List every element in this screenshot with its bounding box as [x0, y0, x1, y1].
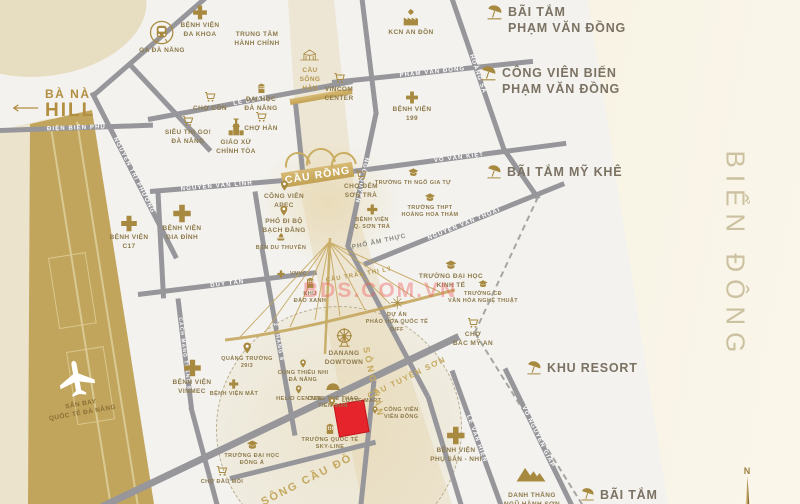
- poi-bai-tam-my-khe: BÃI TẮM MỸ KHÊ: [486, 163, 622, 180]
- pin-icon: [295, 385, 304, 394]
- poi-label: TRƯỜNG CĐVĂN HÓA NGHỆ THUẬT: [448, 291, 518, 306]
- poi-cho-bac-my-an: CHỢBẮC MỸ AN: [453, 317, 493, 349]
- mountains-icon: [515, 456, 549, 490]
- building-icon: [255, 82, 267, 94]
- poi-benh-vien-gia-dinh: BỆNH VIỆNGIA ĐÌNH: [163, 204, 202, 243]
- umbrella-icon: [480, 64, 497, 81]
- poi-truong-thpt-hoang-hoa-tham: TRƯỜNG THPTHOÀNG HOA THÁM: [401, 192, 458, 220]
- cross-icon: [173, 204, 192, 223]
- poi-kcn-an-don: KCN AN ĐỒN: [388, 8, 433, 38]
- poi-bai-tam-cut: BÃI TẮM: [580, 486, 658, 503]
- poi-label: BÃI TẮM: [600, 487, 658, 503]
- pin-icon: [278, 180, 289, 191]
- poi-label: BỆNH VIỆNGIA ĐÌNH: [163, 225, 202, 243]
- poi-vincom-center: VINCOMCENTER: [324, 72, 353, 104]
- poi-benh-vien-vinmec: BỆNH VIỆNVINMEC: [173, 359, 212, 397]
- dome-icon: [325, 379, 340, 394]
- poi-label: VINCOMCENTER: [324, 86, 353, 104]
- boat-icon: [275, 231, 287, 243]
- poi-cho-dem-son-tra: CHỢ ĐÊMSƠN TRÀ: [344, 169, 378, 201]
- cross-icon: [229, 379, 239, 389]
- poi-helio-center: HELIO CENTER: [276, 385, 322, 403]
- pin-icon: [241, 342, 253, 354]
- ferris-icon: [334, 327, 355, 348]
- poi-label: BỆNH VIỆNVINMEC: [173, 379, 212, 397]
- poi-label: CHỢ ĐẦU MỐI: [201, 479, 243, 486]
- road-label: VÕ VĂN KIỆT: [434, 151, 485, 164]
- cart-icon: [216, 465, 228, 477]
- hill-zone: [0, 0, 155, 90]
- poi-benh-vien-c17: BỆNH VIỆNC17: [110, 215, 149, 252]
- pin-icon: [327, 397, 337, 407]
- poi-label: BÃI TẮMPHẠM VĂN ĐỒNG: [508, 4, 626, 37]
- poi-label: DANANGDOWTOWN: [325, 350, 363, 368]
- bridge-icon: [300, 45, 320, 65]
- poi-label: QUẢNG TRƯỜNG29/3: [221, 356, 273, 371]
- poi-label: BẾN DU THUYỀN: [256, 245, 306, 252]
- building-icon: [324, 422, 337, 435]
- poi-label: CHỢ ĐÊMSƠN TRÀ: [344, 183, 378, 201]
- cap-icon: [445, 259, 457, 271]
- poi-label: BỆNH VIỆN199: [393, 106, 432, 124]
- cap-icon: [425, 192, 436, 203]
- road-label: ĐIỆN BIÊN PHỦ: [47, 124, 106, 132]
- poi-label: BỆNH VIỆNĐA KHOA: [181, 22, 220, 40]
- poi-label: DANH THẮNGNGŨ HÀNH SƠN: [504, 492, 560, 504]
- cart-icon: [204, 91, 216, 103]
- cross-icon: [121, 215, 138, 232]
- poi-truong-cd-van-hoa-nghe-thuat: TRƯỜNG CĐVĂN HÓA NGHỆ THUẬT: [448, 279, 518, 306]
- compass: N: [740, 466, 754, 504]
- poi-truong-dai-hoc-dong-a: TRƯỜNG ĐẠI HỌCĐÔNG Á: [224, 439, 279, 468]
- poi-benh-vien-da-khoa: BỆNH VIỆNĐA KHOA: [181, 5, 220, 40]
- poi-label: CHỢBẮC MỸ AN: [453, 331, 493, 349]
- poi-truong-quoc-te-sky-line: TRƯỜNG QUỐC TẾSKY-LINE: [301, 422, 358, 452]
- train-icon: [150, 20, 175, 45]
- church-icon: [226, 117, 246, 137]
- poi-label: BỆNH VIỆN MẮT: [210, 391, 259, 398]
- poi-label: GA ĐÀ NẴNG: [139, 47, 185, 56]
- pin-icon: [278, 205, 289, 216]
- poi-label: BỆNH VIỆNC17: [110, 234, 149, 252]
- umbrella-icon: [580, 486, 595, 501]
- road-label: NGUYỄN TRI PHƯƠNG: [112, 136, 156, 214]
- poi-sieu-thi-go-da-nang: SIÊU THỊ GO!ĐÀ NẴNG: [165, 115, 211, 147]
- poi-label: TRƯỜNG QUỐC TẾSKY-LINE: [301, 437, 358, 452]
- poi-label: CÔNG VIÊNVIÊN ĐÔNG: [384, 407, 418, 422]
- plane-icon: [52, 354, 101, 403]
- poi-danh-thang-ngu-hanh-son: DANH THẮNGNGŨ HÀNH SƠN: [504, 456, 560, 504]
- poi-san-bay-quoc-te-da-nang: SÂN BAYQUỐC TẾ ĐÀ NẴNG: [39, 352, 116, 424]
- watermark-label: BDS.COM.VN: [303, 279, 457, 303]
- poi-trung-tam-hanh-chinh: TRUNG TÂMHÀNH CHÍNH: [234, 29, 279, 49]
- poi-dai-hoc-da-nang: ĐẠI HỌCĐÀ NẴNG: [244, 82, 277, 114]
- poi-label: BỆNH VIỆNPHỤ SẢN - NHI: [430, 447, 481, 465]
- danang-location-map: ĐIỆN BIÊN PHỦLÊ DUẨNPHẠM VĂN ĐỒNGNGUYỄN …: [0, 0, 800, 504]
- cross-icon: [193, 5, 208, 20]
- road-ngo-quyen-north: [360, 0, 379, 115]
- poi-label: CÔNG VIÊN BIỂNPHẠM VĂN ĐỒNG: [502, 65, 620, 98]
- poi-label: GIÁO XỨCHÍNH TÒA: [216, 139, 256, 157]
- poi-ga-da-nang: GA ĐÀ NẴNG: [139, 20, 185, 56]
- cross-icon: [447, 426, 466, 445]
- bana-hill-pointer: BÀ NÀ HILL: [12, 88, 95, 121]
- poi-label: TRƯỜNG TH NGÔ GIA TỰ: [375, 180, 451, 187]
- sea-name-label: BIỂN ĐÔNG: [720, 151, 751, 360]
- cart-icon: [467, 317, 479, 329]
- compass-north-label: N: [740, 466, 754, 476]
- umbrella-icon: [486, 163, 502, 179]
- poi-label: HELIO CENTER: [276, 396, 322, 403]
- bana-hill-label: HILL: [45, 101, 95, 121]
- poi-cong-vien-bien-pham-van-dong: CÔNG VIÊN BIỂNPHẠM VĂN ĐỒNG: [480, 64, 620, 98]
- cart-icon: [255, 111, 267, 123]
- poi-khu-resort: KHU RESORT: [526, 359, 638, 376]
- poi-label: CHỢ CỒN: [193, 105, 227, 114]
- poi-danang-dowtown: DANANGDOWTOWN: [325, 327, 363, 368]
- poi-label: CẦUSÔNGHÀN: [300, 67, 321, 93]
- poi-label: TRUNG TÂMHÀNH CHÍNH: [234, 31, 279, 49]
- road-label: NGUYỄN VĂN LINH: [181, 180, 253, 192]
- cross-icon: [183, 359, 201, 377]
- poi-label: TRƯỜNG THPTHOÀNG HOA THÁM: [401, 205, 458, 220]
- poi-quang-truong-29-3: QUẢNG TRƯỜNG29/3: [221, 342, 273, 371]
- compass-needle-icon: [743, 476, 752, 504]
- cap-icon: [246, 439, 258, 451]
- poi-benh-vien-q-son-tra: BỆNH VIỆNQ. SƠN TRÀ: [354, 204, 391, 232]
- cart-icon: [355, 169, 367, 181]
- poi-bai-tam-pham-van-dong: BÃI TẮMPHẠM VĂN ĐỒNG: [486, 3, 626, 37]
- cap-icon: [478, 279, 488, 289]
- poi-label: KCN AN ĐỒN: [388, 29, 433, 38]
- poi-label: SIÊU THỊ GO!ĐÀ NẴNG: [165, 129, 211, 147]
- poi-label: KHU RESORT: [547, 360, 638, 376]
- poi-cau-song-han: CẦUSÔNGHÀN: [300, 45, 321, 93]
- road-label: PHẠM VĂN ĐỒNG: [399, 66, 465, 79]
- cross-icon: [367, 204, 378, 215]
- poi-label: DỰ ÁNPHÁO HOA QUỐC TẾDIFF: [366, 312, 428, 334]
- cart-icon: [333, 72, 345, 84]
- cap-icon: [408, 167, 419, 178]
- poi-benh-vien-199: BỆNH VIỆN199: [393, 91, 432, 124]
- poi-ben-du-thuyen: BẾN DU THUYỀN: [256, 231, 306, 252]
- cross-icon: [406, 91, 419, 104]
- poi-giao-xu-chinh-toa: GIÁO XỨCHÍNH TÒA: [216, 117, 256, 157]
- poi-truong-th-ngo-gia-tu: TRƯỜNG TH NGÔ GIA TỰ: [375, 167, 451, 187]
- poi-label: BÃI TẮM MỸ KHÊ: [507, 164, 622, 180]
- cart-icon: [182, 115, 194, 127]
- umbrella-icon: [486, 3, 503, 20]
- poi-cho-con: CHỢ CỒN: [193, 91, 227, 114]
- poi-cho-dau-moi: CHỢ ĐẦU MỐI: [201, 465, 243, 486]
- cross-icon: [277, 270, 285, 278]
- arrow-left-icon: [12, 100, 39, 110]
- umbrella-icon: [526, 359, 542, 375]
- pin-icon: [298, 359, 307, 368]
- poi-benh-vien-mat: BỆNH VIỆN MẮT: [210, 379, 259, 398]
- factory-icon: [401, 8, 420, 27]
- poi-label: BỆNH VIỆNQ. SƠN TRÀ: [354, 217, 391, 232]
- poi-benh-vien-phu-san-nhi: BỆNH VIỆNPHỤ SẢN - NHI: [430, 426, 481, 465]
